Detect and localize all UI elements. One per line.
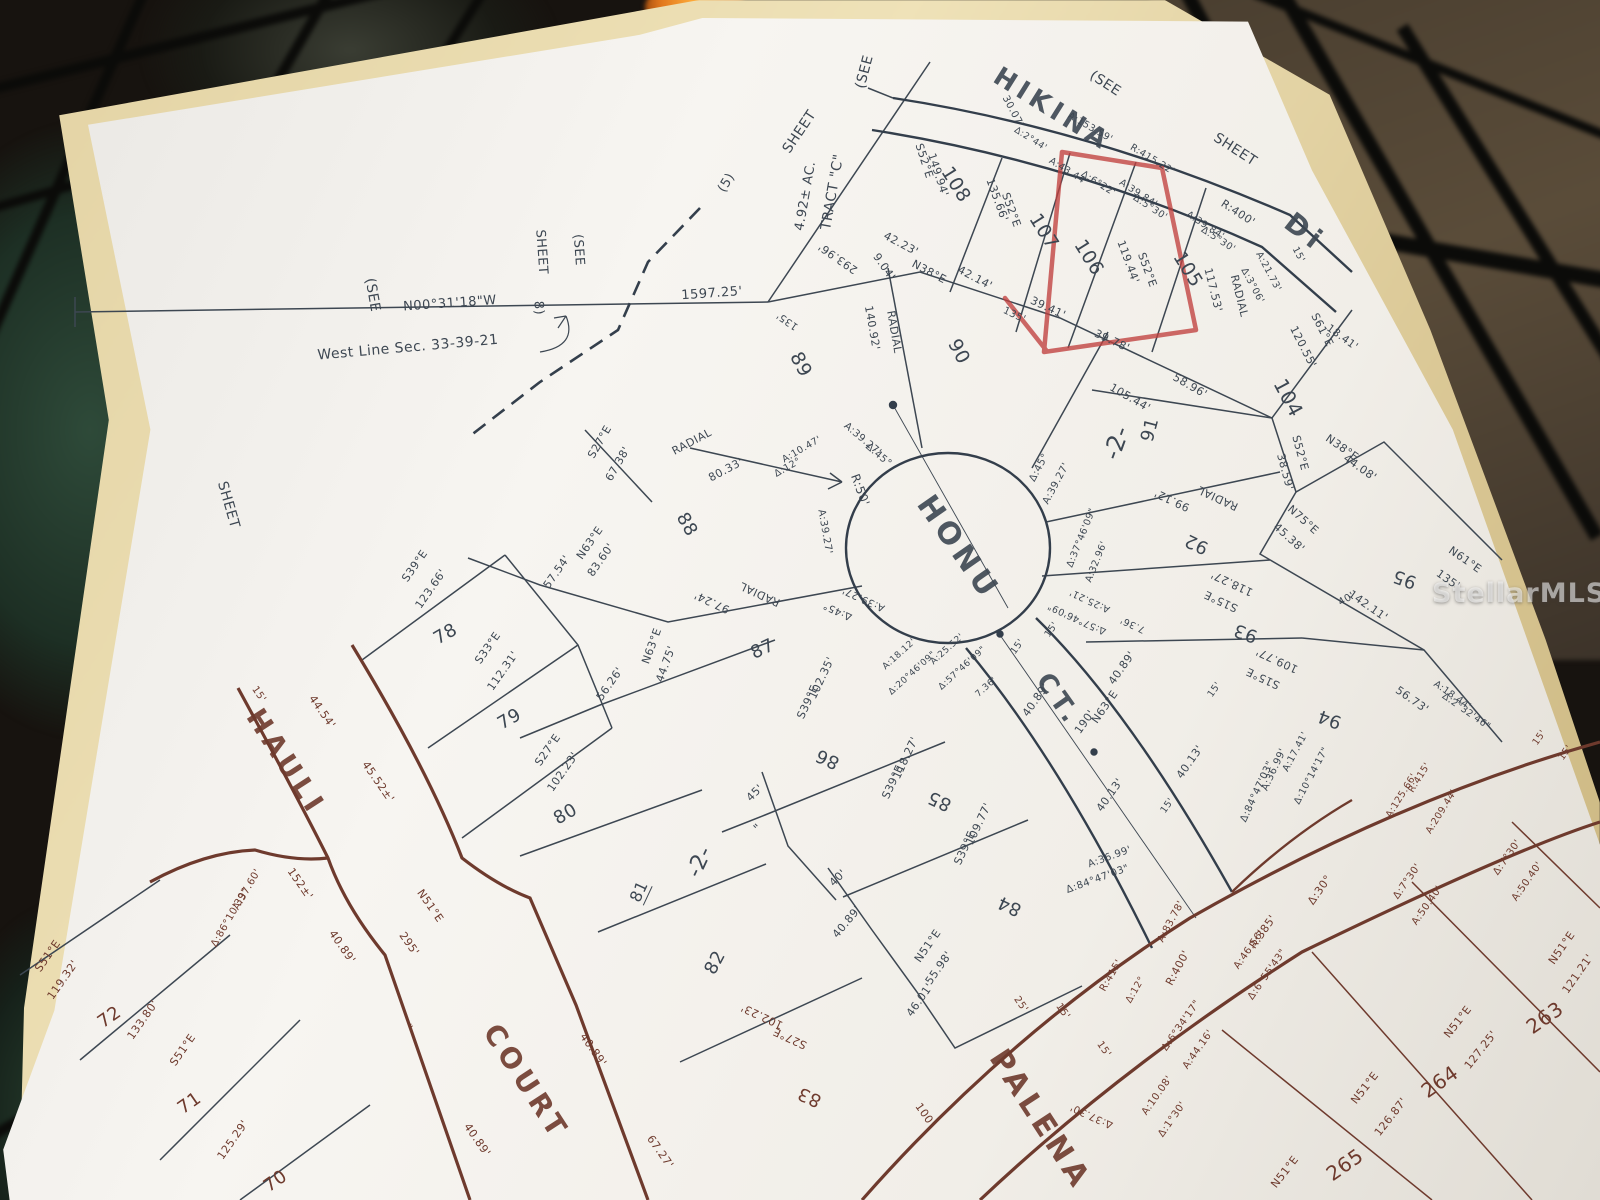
map-label: (SEE [362, 277, 382, 313]
map-label: 133.80' [125, 998, 160, 1041]
map-label: 80.33' [707, 456, 746, 484]
map-label: 15' [1094, 1040, 1112, 1060]
map-label: 123.66' [413, 567, 448, 610]
map-label: 40.89' [578, 1031, 609, 1068]
map-label: 90 [943, 336, 972, 368]
map-label: PALENA [983, 1044, 1097, 1196]
map-label: 70 [261, 1167, 291, 1196]
map-label: 92 [1182, 529, 1212, 556]
map-label: 102.35' [807, 655, 836, 701]
map-label: 15' [1206, 681, 1223, 700]
map-label: 107 [1025, 211, 1062, 254]
map-label: 84 [995, 891, 1025, 918]
map-label: S51°E [33, 938, 63, 974]
map-label: R:385' [1247, 913, 1278, 951]
map-label: 127.25' [1463, 1029, 1500, 1072]
map-label: 4.92± AC. [793, 160, 819, 232]
map-label: 293.96' [816, 240, 859, 275]
map-label: S27°E [533, 732, 563, 768]
map-label: COURT [478, 1019, 574, 1145]
map-label: 39.41' [1029, 295, 1068, 321]
map-label: 89 [785, 349, 814, 381]
map-label: S51°E [168, 1032, 198, 1068]
map-label: 38.59' [1275, 452, 1296, 491]
map-label: A:44.16' [1182, 1028, 1217, 1071]
map-label: N51°E [1547, 929, 1578, 966]
map-label: A:209.44' [1425, 788, 1460, 836]
map-label: 109.77' [964, 801, 993, 847]
map-label: 86 [813, 744, 843, 771]
map-label: 81 [627, 879, 652, 906]
map-label: 57.54' [542, 553, 573, 590]
map-label: A:125.66' [1385, 772, 1420, 820]
map-label: 7.36' [975, 676, 1000, 700]
map-label: Δ:1°30' [1157, 1100, 1189, 1139]
map-label: 265 [1323, 1145, 1368, 1185]
map-label: 15' [1557, 744, 1574, 763]
map-label: (5) [716, 171, 738, 195]
map-label: 152±' [285, 866, 315, 902]
map-label: 135' [1001, 306, 1027, 326]
map-label: Δ:2°44' [1012, 126, 1048, 154]
map-label: 121.21' [1560, 952, 1595, 995]
map-label: 125.29' [215, 1118, 250, 1161]
map-label: 264 [1418, 1062, 1463, 1102]
map-label: 15' [249, 685, 267, 705]
map-label: 95 [1391, 565, 1420, 591]
map-label: N51°E [1269, 1154, 1301, 1190]
map-label: A:39.27' [1042, 461, 1073, 506]
map-label: 44.54' [307, 693, 338, 730]
map-label: SHEET [780, 108, 819, 156]
map-label: HONU [911, 490, 1006, 606]
map-label: N61°E [1446, 545, 1483, 576]
map-label: 56.26' [595, 665, 626, 702]
map-label: 135' [775, 309, 801, 331]
map-label: A:83.78' [1157, 899, 1188, 944]
map-label: TRACT "C" [819, 153, 847, 231]
map-label: 97.24' [693, 589, 732, 615]
map-label: 15' [1159, 797, 1176, 816]
map-label: A:39.27' [815, 509, 833, 556]
map-label: 8) [531, 300, 546, 315]
map-labels-layer: (SEESHEET(5)(SEESHEET(SEESHEET(SEESHEET8… [0, 0, 1600, 1200]
map-label: SHEET [533, 229, 550, 275]
map-label: 94 [1316, 705, 1345, 731]
map-label: 104 [1269, 376, 1306, 421]
map-label: 45' [744, 782, 765, 803]
map-label: 25' [1011, 995, 1029, 1015]
map-label: Δ:12° [1124, 975, 1147, 1005]
map-label: 119.32' [45, 958, 80, 1001]
map-label: 112.31' [485, 649, 520, 692]
map-label: 42.23' [882, 230, 921, 258]
map-label: Δ:6°55'43" [1247, 948, 1290, 1003]
stellarmls-watermark: StellarMLS [1432, 578, 1600, 609]
map-label: 72 [95, 1003, 125, 1032]
map-label: 105.44' [1108, 382, 1153, 415]
map-label: 126.87' [1373, 1096, 1410, 1139]
map-label: 87 [748, 636, 778, 663]
map-label: 58.96' [1171, 372, 1209, 401]
map-label: S52°E [1290, 434, 1310, 472]
map-label: 105 [1169, 249, 1206, 292]
map-label: 118.27' [891, 735, 920, 781]
map-label: Δ:12° [773, 456, 803, 479]
map-label: 1597.25' [681, 285, 743, 303]
map-label: N63°E [1090, 688, 1121, 725]
map-label: 46.01' [905, 981, 936, 1018]
map-label: 88 [672, 510, 700, 540]
map-label: A:32.96' [1084, 540, 1109, 584]
map-label: N38°E [910, 258, 948, 286]
map-label: 106 [1070, 237, 1107, 280]
map-label: 15' [1043, 621, 1060, 640]
map-label: RADIAL [670, 427, 713, 457]
map-label: R:400' [1164, 948, 1192, 987]
map-label: 295' [397, 930, 421, 958]
map-label: RADIAL [738, 580, 782, 609]
map-label: 39.78' [1093, 328, 1132, 354]
map-label: 44.75' [654, 644, 678, 683]
map-label: (SEE [570, 234, 586, 267]
map-label: A:50.40' [1411, 884, 1446, 927]
map-label: " [751, 821, 764, 834]
map-label: 120.55' [1288, 324, 1319, 369]
map-label: (SEE [854, 54, 877, 91]
map-label: 44.08' [1341, 453, 1378, 484]
map-label: 9.04' [871, 251, 898, 282]
map-label: Δ:7°30' [1392, 862, 1424, 901]
map-label: R:50' [848, 472, 871, 507]
map-label: 45.52±' [360, 759, 397, 804]
map-label: HAULI [241, 704, 331, 821]
map-label: 71 [175, 1089, 205, 1118]
map-label: 79 [495, 706, 525, 734]
map-label: S27°E [771, 1025, 808, 1051]
map-label: 42.14' [956, 264, 995, 292]
map-label: 15' [1009, 638, 1026, 657]
map-label: 100' [913, 1101, 937, 1129]
map-label: Δ:45° [822, 599, 854, 621]
map-label: 56.73' [1393, 685, 1430, 716]
map-label: R:415.22' [1128, 143, 1176, 177]
map-label: S15°E [1244, 665, 1281, 691]
map-label: R:400' [1219, 198, 1257, 228]
map-label: -2- [1099, 423, 1134, 464]
map-label: S33°E [473, 630, 503, 666]
map-label: 80 [551, 801, 581, 829]
map-label: RADIAL [1196, 484, 1240, 513]
map-label: Δ:84°47'03" [1239, 760, 1277, 824]
map-label: " [401, 1022, 415, 1034]
map-label: 15' [1053, 1002, 1071, 1022]
map-label: Di [1279, 207, 1331, 257]
map-label: 40' [827, 867, 848, 888]
map-label: 82 [702, 948, 730, 978]
plat-map-photo: (SEESHEET(5)(SEESHEET(SEESHEET(SEESHEET8… [0, 0, 1600, 1200]
map-label: 99.12' [1153, 487, 1192, 513]
map-label: N00°31'18"W [403, 294, 497, 314]
map-label: 67.27' [645, 1133, 676, 1170]
map-label: 78 [431, 621, 461, 649]
map-label: RADIAL [885, 310, 904, 354]
map-label: 40.13' [1175, 743, 1206, 780]
map-label: Δ:30° [1306, 873, 1335, 907]
map-label: 117.53' [1202, 267, 1224, 313]
map-label: -2- [683, 843, 717, 881]
map-label: 40.89' [1107, 649, 1138, 686]
map-label: N51°E [1442, 1004, 1474, 1040]
map-label: SHEET [214, 480, 241, 530]
map-label: S27°E [586, 424, 614, 461]
map-label: SHEET [1211, 131, 1259, 170]
map-label: Δ:7°30' [1492, 838, 1524, 877]
map-label: 40.89' [462, 1121, 493, 1158]
map-label: Δ:37.30' [1069, 1101, 1115, 1130]
map-label: (SEE [1087, 69, 1124, 100]
map-label: 7.36' [1119, 614, 1147, 634]
map-label: 15' [1531, 729, 1548, 748]
map-label: 40.89' [327, 928, 358, 965]
map-label: N51°E [1349, 1070, 1381, 1106]
map-label: S39°E [400, 548, 430, 584]
map-label: 263 [1523, 998, 1568, 1038]
map-label: Δ:84°47'03" [1065, 864, 1131, 897]
map-label: 140.92' [862, 305, 881, 351]
map-label: 93 [1232, 619, 1261, 645]
map-label: Δ:45° [1028, 452, 1052, 484]
map-label: Δ:86°10'39" [210, 887, 252, 950]
map-label: R:415' [1099, 958, 1126, 993]
map-label: N51°E [415, 887, 446, 924]
map-label: 85 [925, 786, 955, 813]
map-label: 91 [1139, 416, 1163, 444]
map-label: A:25.21' [1068, 586, 1111, 613]
map-label: 83 [795, 1082, 825, 1109]
map-label: A:50.40' [1511, 860, 1546, 903]
map-label: S52°E [1135, 251, 1158, 289]
map-label: 67.38' [604, 445, 633, 483]
map-label: 40.89' [831, 904, 864, 940]
map-label: 40.13' [1095, 776, 1126, 813]
map-label: West Line Sec. 33-39-21 [317, 333, 499, 363]
map-label: S15°E [1202, 588, 1239, 614]
